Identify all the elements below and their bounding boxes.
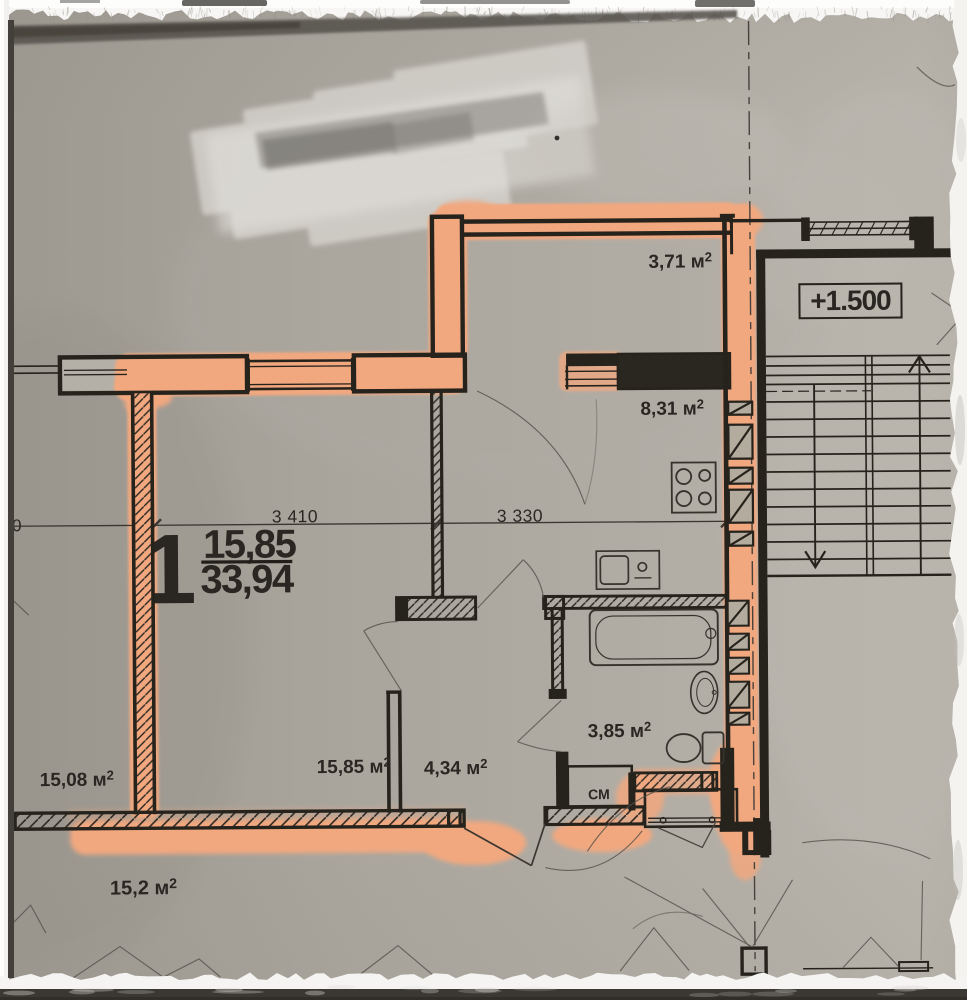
svg-text:СМ: СМ [588, 786, 610, 802]
svg-text:33,94: 33,94 [200, 557, 295, 602]
svg-text:15,85 м2: 15,85 м2 [317, 755, 391, 779]
svg-text:4,34 м2: 4,34 м2 [424, 756, 488, 779]
svg-text:15,2 м2: 15,2 м2 [110, 875, 177, 899]
svg-text:15,08 м2: 15,08 м2 [40, 768, 114, 792]
svg-text:3,85 м2: 3,85 м2 [588, 719, 652, 742]
svg-text:3,71 м2: 3,71 м2 [648, 249, 712, 272]
svg-text:3 330: 3 330 [497, 506, 543, 526]
svg-text:+1.500: +1.500 [810, 285, 891, 317]
svg-text:8,31 м2: 8,31 м2 [640, 396, 704, 419]
